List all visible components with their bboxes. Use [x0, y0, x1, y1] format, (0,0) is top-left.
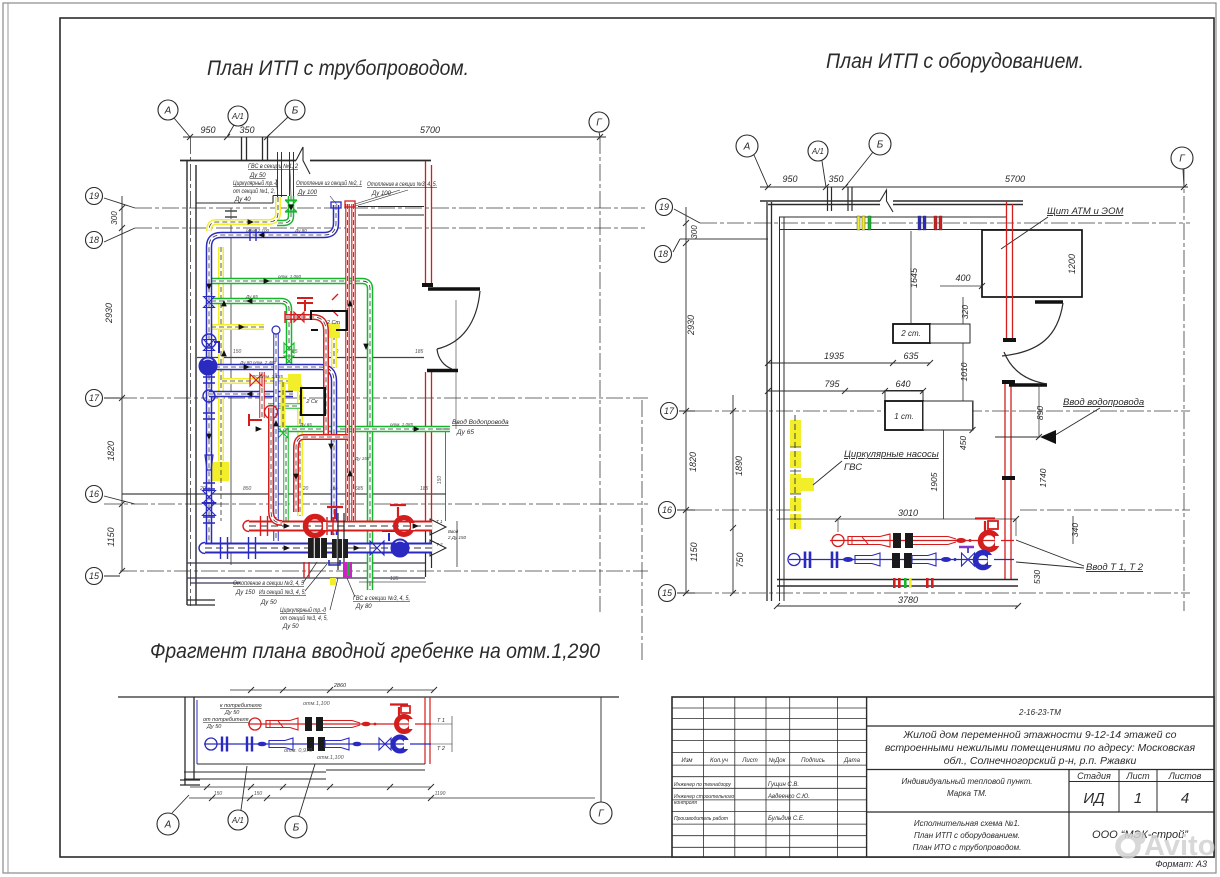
svg-text:Из секций №3, 4, 5,: Из секций №3, 4, 5,	[259, 589, 306, 596]
svg-text:Ввод: Ввод	[448, 529, 459, 534]
svg-text:1200: 1200	[1067, 254, 1077, 274]
svg-text:340: 340	[1070, 523, 1080, 537]
svg-text:750: 750	[735, 552, 745, 567]
svg-text:Avito: Avito	[1144, 830, 1215, 862]
svg-text:Инженер по технадзору: Инженер по технадзору	[674, 782, 731, 788]
svg-text:А: А	[743, 142, 751, 153]
svg-text:к потребителю: к потребителю	[220, 703, 262, 709]
svg-text:1740: 1740	[1038, 468, 1048, 487]
svg-text:Дата: Дата	[843, 758, 860, 764]
svg-text:1905: 1905	[929, 472, 939, 491]
svg-text:Ду 80: Ду 80	[355, 604, 372, 610]
svg-text:2930: 2930	[686, 315, 696, 336]
svg-text:Отопление в секции №3, 4, 5.: Отопление в секции №3, 4, 5.	[367, 181, 437, 188]
svg-text:контроля: контроля	[674, 800, 697, 806]
svg-text:А/1: А/1	[231, 112, 244, 121]
svg-text:135: 135	[390, 576, 399, 582]
svg-text:2 Ск: 2 Ск	[305, 399, 318, 405]
svg-text:685: 685	[355, 486, 364, 492]
svg-text:1645: 1645	[909, 267, 919, 288]
svg-text:А: А	[164, 820, 172, 831]
svg-text:15: 15	[89, 571, 100, 581]
svg-text:Отопление из секций №2, 1: Отопление из секций №2, 1	[296, 180, 362, 187]
svg-text:19: 19	[659, 202, 669, 212]
svg-text:отм.1,100: отм.1,100	[317, 755, 345, 761]
svg-text:Ду 150: Ду 150	[235, 590, 256, 596]
svg-text:Жилой дом переменной этажности: Жилой дом переменной этажности 9-12-14 э…	[903, 729, 1177, 741]
svg-text:635: 635	[903, 351, 919, 361]
svg-text:Фрагмент плана вводной гребенк: Фрагмент плана вводной гребенке на отм.1…	[150, 640, 600, 663]
svg-text:от секций №3, 4, 5,: от секций №3, 4, 5,	[280, 615, 328, 622]
svg-text:320: 320	[960, 305, 970, 319]
svg-text:Авдеенко С.Ю.: Авдеенко С.Ю.	[767, 794, 810, 800]
svg-text:Т 1: Т 1	[436, 519, 443, 524]
svg-text:950: 950	[200, 125, 215, 135]
svg-text:5700: 5700	[1005, 174, 1025, 184]
svg-text:№Док: №Док	[769, 757, 787, 764]
svg-text:5700: 5700	[420, 125, 440, 135]
svg-text:Производитель работ: Производитель работ	[674, 816, 728, 822]
svg-text:Ввод Т 1, Т 2: Ввод Т 1, Т 2	[1086, 562, 1144, 573]
svg-text:3010: 3010	[898, 508, 918, 518]
svg-text:150: 150	[437, 476, 443, 485]
svg-text:Циркулярные насосы: Циркулярные насосы	[844, 449, 939, 460]
svg-text:2 Ст: 2 Ст	[326, 320, 341, 326]
svg-text:отм. 0,970: отм. 0,970	[284, 748, 313, 754]
svg-text:ГВС в секции №1, 2: ГВС в секции №1, 2	[248, 163, 299, 170]
svg-text:отм.1,100: отм.1,100	[303, 701, 331, 707]
svg-text:ГВС отм. 2,135: ГВС отм. 2,135	[250, 374, 283, 379]
svg-text:1820: 1820	[688, 452, 698, 472]
svg-text:450: 450	[958, 436, 968, 450]
svg-text:отм. 1,085: отм. 1,085	[390, 422, 414, 427]
svg-text:795: 795	[824, 379, 840, 389]
svg-text:850: 850	[243, 486, 252, 492]
svg-text:1150: 1150	[106, 527, 116, 546]
svg-text:Стадия: Стадия	[1077, 771, 1111, 781]
svg-text:План ИТП с оборудованием.: План ИТП с оборудованием.	[914, 831, 1020, 840]
svg-text:15: 15	[662, 588, 673, 598]
svg-text:Ду 65: Ду 65	[245, 294, 258, 299]
svg-text:отм. 1,060: отм. 1,060	[278, 274, 302, 279]
svg-text:300: 300	[110, 211, 119, 225]
svg-text:План ИТП с трубопроводом.: План ИТП с трубопроводом.	[207, 57, 469, 80]
svg-text:Ду 65: Ду 65	[456, 429, 474, 436]
svg-text:1: 1	[1134, 790, 1142, 807]
svg-text:Т 2: Т 2	[436, 542, 443, 547]
svg-text:18: 18	[89, 235, 99, 245]
svg-text:185: 185	[420, 486, 429, 492]
svg-text:Гущин С.В.: Гущин С.В.	[768, 782, 799, 788]
svg-text:Ду 150: Ду 150	[354, 456, 370, 461]
svg-text:1190: 1190	[435, 791, 446, 797]
svg-text:Отопление в секции №3, 4, 5: Отопление в секции №3, 4, 5	[233, 580, 305, 587]
svg-text:17: 17	[89, 393, 100, 403]
svg-text:1010: 1010	[959, 362, 969, 381]
svg-text:Кол.уч: Кол.уч	[710, 758, 728, 764]
svg-text:Подпись: Подпись	[801, 758, 825, 764]
svg-text:Б: Б	[293, 823, 300, 834]
svg-text:Циркулярный тр.-д: Циркулярный тр.-д	[233, 180, 279, 187]
svg-text:150: 150	[214, 791, 223, 797]
svg-text:150: 150	[254, 791, 263, 797]
svg-text:2930: 2930	[104, 303, 114, 324]
svg-text:ГВС: ГВС	[844, 462, 862, 473]
svg-text:950: 950	[782, 174, 797, 184]
svg-text:19: 19	[89, 191, 99, 201]
svg-text:ГВС в секции №3, 4, 5,: ГВС в секции №3, 4, 5,	[353, 595, 410, 602]
svg-text:Ду 50: Ду 50	[206, 724, 222, 730]
svg-text:350: 350	[828, 174, 843, 184]
svg-text:встроенными нежилыми помещения: встроенными нежилыми помещениями по адре…	[885, 742, 1196, 754]
svg-text:А/1: А/1	[811, 147, 824, 156]
svg-text:Лист: Лист	[741, 758, 757, 764]
svg-text:Марка ТМ.: Марка ТМ.	[947, 789, 987, 798]
svg-text:1935: 1935	[824, 351, 845, 361]
svg-text:Ду 100: Ду 100	[297, 190, 318, 196]
svg-text:План ИТО с трубопроводом.: План ИТО с трубопроводом.	[913, 843, 1022, 852]
svg-text:2 ст.: 2 ст.	[900, 329, 920, 338]
svg-text:ИД: ИД	[1083, 790, 1105, 807]
svg-text:Ду 50: Ду 50	[260, 600, 277, 606]
svg-text:400: 400	[955, 273, 970, 283]
svg-text:План ИТП с оборудованием.: План ИТП с оборудованием.	[826, 50, 1084, 73]
svg-text:Б: Б	[292, 106, 299, 117]
svg-text:Изм: Изм	[681, 758, 692, 764]
svg-text:Ду 50: Ду 50	[224, 710, 240, 716]
svg-text:890: 890	[1035, 406, 1045, 420]
svg-text:16: 16	[89, 489, 99, 499]
svg-text:А: А	[164, 106, 172, 117]
svg-text:17: 17	[664, 406, 675, 416]
svg-text:Б: Б	[877, 140, 884, 151]
svg-text:1150: 1150	[689, 542, 699, 561]
svg-text:Бульдин С.Е.: Бульдин С.Е.	[768, 816, 805, 822]
svg-text:4: 4	[1181, 790, 1189, 807]
svg-text:150: 150	[233, 349, 242, 355]
svg-text:отм. 2,100: отм. 2,100	[246, 228, 270, 233]
svg-text:2 Ду 150: 2 Ду 150	[447, 535, 466, 540]
svg-text:Ду 80: Ду 80	[294, 228, 307, 233]
svg-text:Ду 50: Ду 50	[249, 173, 266, 179]
svg-text:Ду 80 отм. 2,480: Ду 80 отм. 2,480	[239, 360, 277, 365]
svg-text:1890: 1890	[734, 456, 744, 476]
svg-text:530: 530	[1032, 570, 1042, 584]
svg-text:640: 640	[895, 379, 910, 389]
svg-text:Исполнительная схема №1.: Исполнительная схема №1.	[914, 819, 1020, 828]
svg-text:350: 350	[239, 125, 254, 135]
svg-text:Ввод Водопровода: Ввод Водопровода	[452, 418, 509, 426]
svg-text:1 ст.: 1 ст.	[894, 412, 913, 421]
svg-text:150: 150	[330, 486, 338, 491]
svg-text:Ввод водопровода: Ввод водопровода	[1063, 397, 1144, 408]
svg-text:Ду 40: Ду 40	[234, 197, 251, 203]
svg-text:16: 16	[662, 505, 672, 515]
svg-text:300: 300	[690, 225, 699, 239]
svg-text:185: 185	[415, 349, 424, 355]
svg-text:2860: 2860	[333, 683, 347, 689]
svg-text:Т 1: Т 1	[437, 718, 445, 724]
svg-text:18: 18	[658, 249, 668, 259]
svg-text:2-16-23-ТМ: 2-16-23-ТМ	[1018, 708, 1061, 717]
svg-text:Лист: Лист	[1125, 771, 1150, 781]
svg-text:3780: 3780	[898, 595, 918, 605]
svg-text:Листов: Листов	[1168, 771, 1202, 781]
svg-text:Щит АТМ и ЭОМ: Щит АТМ и ЭОМ	[1047, 206, 1123, 217]
svg-text:Ду 50: Ду 50	[282, 624, 299, 630]
svg-text:от секций №1, 2,: от секций №1, 2,	[233, 188, 275, 195]
svg-text:А/1: А/1	[231, 816, 244, 825]
svg-text:Индивидуальный тепловой пункт.: Индивидуальный тепловой пункт.	[901, 777, 1032, 786]
svg-text:от потребителя: от потребителя	[203, 717, 249, 723]
svg-text:1820: 1820	[106, 441, 116, 461]
svg-text:Циркулярный тр.-д: Циркулярный тр.-д	[280, 607, 327, 614]
svg-text:обл., Солнечногорский р-н, р: обл., Солнечногорский р-н, р.п. Ржавки	[944, 755, 1137, 767]
svg-text:Ду 65: Ду 65	[299, 422, 312, 427]
svg-text:Т 2: Т 2	[437, 746, 445, 752]
